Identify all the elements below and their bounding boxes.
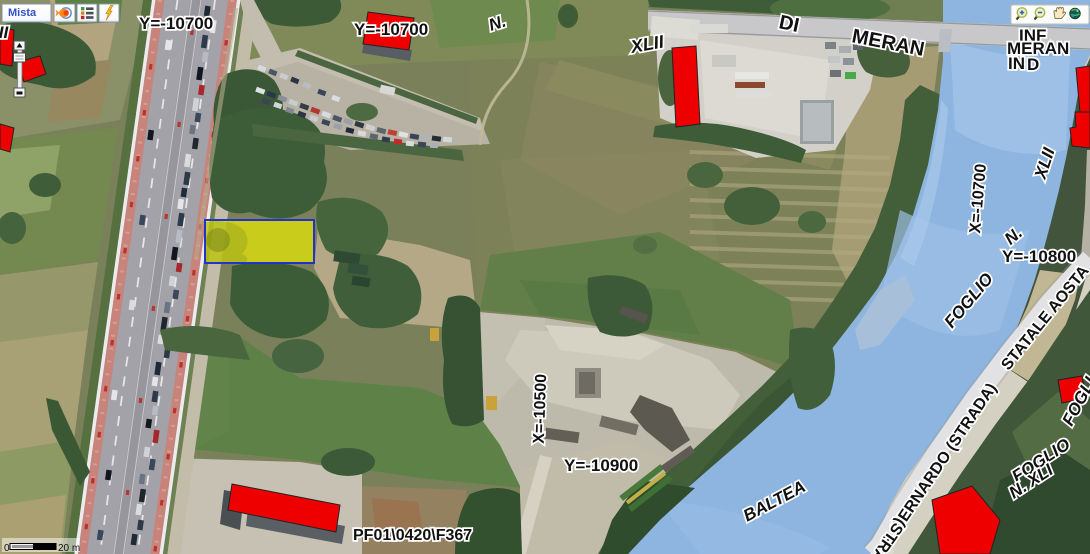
svg-text:D: D: [1027, 55, 1039, 74]
svg-text:Y=-10900: Y=-10900: [564, 456, 638, 475]
svg-text:Y=-10700: Y=-10700: [139, 14, 213, 33]
svg-text:IN: IN: [1008, 54, 1025, 73]
svg-text:Y=-10800: Y=-10800: [1002, 247, 1076, 266]
svg-text:X=-10500: X=-10500: [531, 374, 550, 444]
svg-text:Y=-10700: Y=-10700: [354, 20, 428, 39]
svg-text:Mista: Mista: [8, 7, 37, 19]
svg-text:XLII: XLII: [0, 23, 9, 42]
svg-text:0: 0: [4, 543, 10, 554]
svg-text:PF01\0420\F367: PF01\0420\F367: [353, 527, 472, 544]
svg-text:20 m: 20 m: [58, 543, 80, 554]
